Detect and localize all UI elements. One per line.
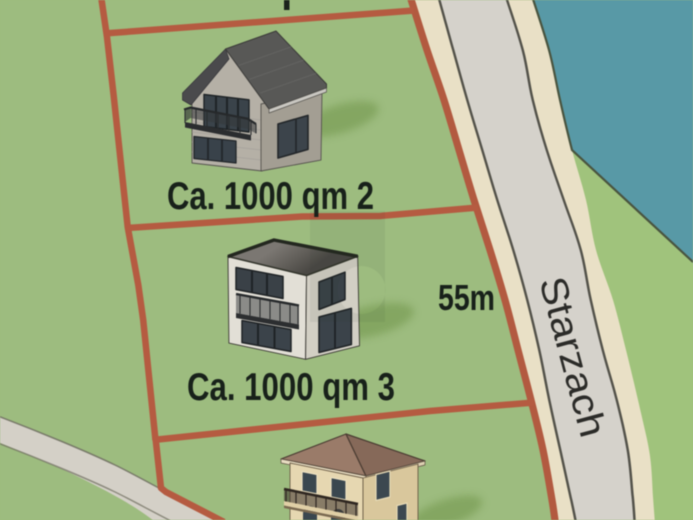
svg-text:Ca. 1000 qm 2: Ca. 1000 qm 2 (167, 175, 374, 218)
svg-text:55m: 55m (438, 277, 495, 318)
svg-text:Ca. 1000 qm 3: Ca. 1000 qm 3 (187, 366, 395, 409)
